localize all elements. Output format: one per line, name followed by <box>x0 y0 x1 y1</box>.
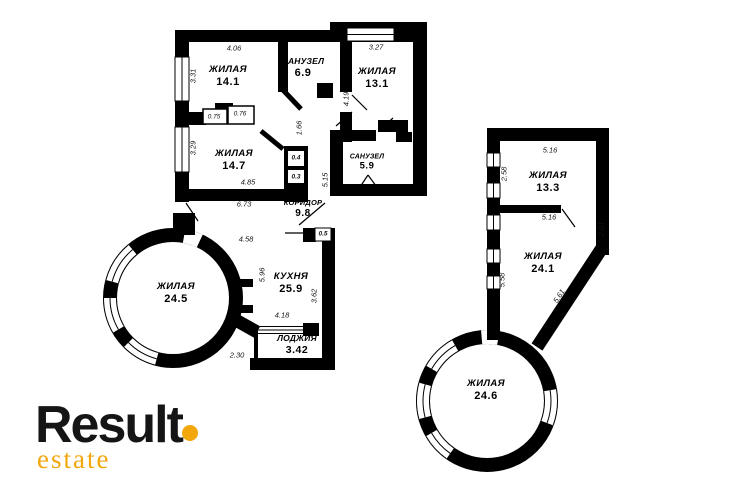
dim-2-30: 2.30 <box>230 351 245 360</box>
dim-3-27: 3.27 <box>369 43 384 52</box>
room-name: ЖИЛАЯ <box>157 282 195 293</box>
room-name: КОРИДОР <box>284 199 322 208</box>
dim-2-01: 2.01 <box>597 222 606 237</box>
room-name: ЖИЛАЯ <box>524 252 562 263</box>
room-label-bath-6-9: САНУЗЕЛ 6.9 <box>282 57 324 79</box>
room-area: 14.7 <box>215 160 253 173</box>
wall-inset-boxes <box>203 106 331 241</box>
room-name: ЛОДЖИЯ <box>277 334 317 344</box>
room-area: 5.9 <box>350 162 384 173</box>
room-name: ЖИЛАЯ <box>209 65 247 76</box>
dim-0-4: 0.4 <box>291 155 300 162</box>
dim-4-19: 4.19 <box>342 92 351 107</box>
room-label-living-24-6: ЖИЛАЯ 24.6 <box>467 379 505 403</box>
room-label-living-14-1: ЖИЛАЯ 14.1 <box>209 65 247 89</box>
dim-0-3: 0.3 <box>291 174 300 181</box>
room-name: ЖИЛАЯ <box>358 67 396 78</box>
room-label-bath-5-9: САНУЗЕЛ 5.9 <box>350 154 384 173</box>
dim-5-15: 5.15 <box>321 173 330 188</box>
dim-3-62: 3.62 <box>310 289 319 304</box>
room-area: 24.5 <box>157 293 195 306</box>
room-name: САНУЗЕЛ <box>282 57 324 67</box>
room-label-living-14-7: ЖИЛАЯ 14.7 <box>215 149 253 173</box>
dim-0-76: 0.76 <box>234 111 247 118</box>
brand-dot-icon <box>182 425 198 441</box>
room-area: 13.3 <box>529 182 567 195</box>
dim-0-75: 0.75 <box>208 114 221 121</box>
room-name: ЖИЛАЯ <box>529 171 567 182</box>
floorplan-page: ЖИЛАЯ 14.1 САНУЗЕЛ 6.9 ЖИЛАЯ 13.1 ЖИЛАЯ … <box>0 0 750 500</box>
right-building-walls <box>487 128 609 340</box>
dim-5-16-top: 5.16 <box>543 146 558 155</box>
room-label-living-13-1: ЖИЛАЯ 13.1 <box>358 67 396 91</box>
room-name: ЖИЛАЯ <box>467 379 505 390</box>
room-label-living-24-1: ЖИЛАЯ 24.1 <box>524 252 562 276</box>
dim-2-58: 2.58 <box>500 167 509 182</box>
dim-6-73: 6.73 <box>237 200 252 209</box>
room-area: 24.6 <box>467 390 505 403</box>
room-area: 6.9 <box>282 67 324 80</box>
room-label-living-24-5: ЖИЛАЯ 24.5 <box>157 282 195 306</box>
dim-4-06: 4.06 <box>227 44 242 53</box>
room-label-living-13-3: ЖИЛАЯ 13.3 <box>529 171 567 195</box>
room-label-kitchen: КУХНЯ 25.9 <box>274 272 308 296</box>
room-name: КУХНЯ <box>274 272 308 283</box>
dim-0-5: 0.5 <box>318 231 327 238</box>
dim-5-16-mid: 5.16 <box>542 213 557 222</box>
dim-3-31: 3.31 <box>189 69 198 84</box>
room-area: 25.9 <box>274 283 308 296</box>
room-name: ЖИЛАЯ <box>215 149 253 160</box>
dim-3-29: 3.29 <box>189 141 198 156</box>
room-area: 13.1 <box>358 78 396 91</box>
dim-1-66: 1.66 <box>295 121 304 136</box>
room-area: 9.8 <box>284 208 322 220</box>
dim-4-18: 4.18 <box>275 311 290 320</box>
brand-logo: Result estate <box>35 399 198 475</box>
dim-5-96: 5.96 <box>258 268 267 283</box>
dim-4-58: 4.58 <box>239 235 254 244</box>
room-label-loggia: ЛОДЖИЯ 3.42 <box>277 334 317 356</box>
dim-4-85: 4.85 <box>241 178 256 187</box>
room-area: 3.42 <box>277 344 317 356</box>
dim-5-58: 5.58 <box>498 273 507 288</box>
room-area: 24.1 <box>524 263 562 276</box>
room-label-corridor: КОРИДОР 9.8 <box>284 199 322 219</box>
room-area: 14.1 <box>209 76 247 89</box>
